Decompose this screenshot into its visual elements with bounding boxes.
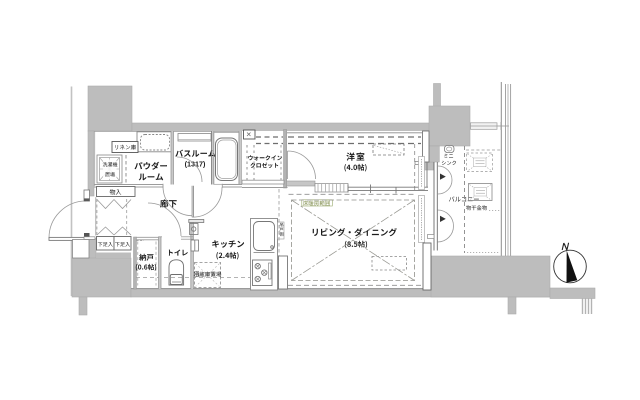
svg-text:(1317): (1317): [185, 160, 206, 169]
